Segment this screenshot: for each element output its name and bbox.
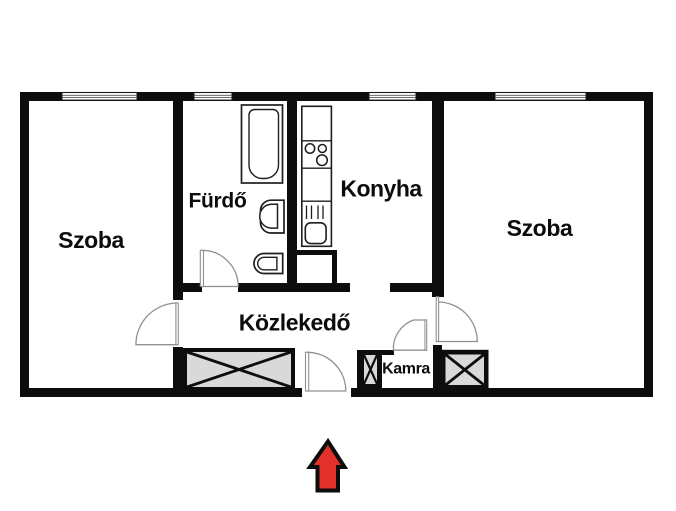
svg-text:Kamra: Kamra: [382, 361, 430, 378]
svg-text:Szoba: Szoba: [507, 215, 573, 241]
svg-text:Szoba: Szoba: [58, 227, 124, 253]
svg-text:Fürdő: Fürdő: [189, 190, 247, 213]
svg-text:Közlekedő: Közlekedő: [239, 310, 351, 336]
svg-text:Konyha: Konyha: [340, 176, 422, 202]
